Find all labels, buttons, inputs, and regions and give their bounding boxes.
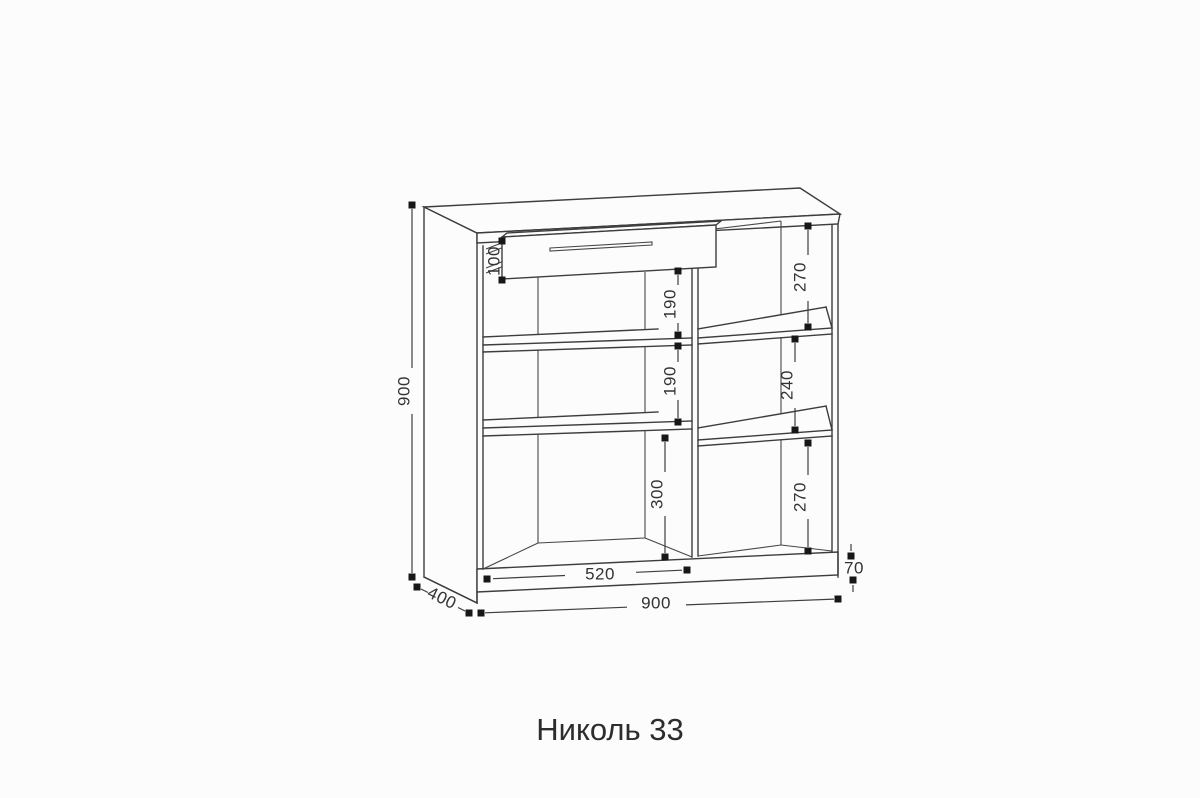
furniture-drawing-page: 900 400 900 100 — [0, 0, 1200, 798]
dim-height: 900 — [395, 202, 416, 581]
dim-left-top-gap-label: 190 — [661, 289, 680, 319]
plinth-front — [477, 552, 838, 592]
dim-left-middle-gap: 190 — [661, 343, 682, 426]
left-floor-back-edge — [538, 538, 645, 543]
dim-drawer-height: 100 — [485, 238, 506, 284]
dim-right-middle-gap-label: 240 — [778, 370, 797, 400]
dim-left-top-gap: 190 — [661, 268, 682, 339]
left-side-panel — [424, 207, 477, 603]
right-shelves — [698, 307, 832, 446]
dim-left-bottom-gap: 300 — [648, 435, 669, 561]
right-shelf-2 — [698, 406, 832, 446]
dim-height-label: 900 — [395, 376, 414, 406]
dim-right-bottom-gap-label: 270 — [791, 482, 810, 512]
dim-width: 900 — [478, 594, 842, 617]
right-floor-left-edge — [698, 545, 781, 556]
dim-right-top-gap-label: 270 — [791, 262, 810, 292]
dim-width-label: 900 — [641, 594, 671, 613]
dim-left-middle-gap-label: 190 — [661, 366, 680, 396]
dim-right-bottom-gap: 270 — [791, 440, 812, 555]
cabinet-technical-drawing: 900 400 900 100 — [0, 0, 1200, 798]
dim-left-section-width-label: 520 — [585, 565, 615, 584]
plinth — [477, 552, 838, 592]
left-floor-left-edge — [483, 543, 538, 569]
product-title: Николь 33 — [536, 712, 684, 747]
dim-plinth-height-label: 70 — [844, 559, 864, 578]
dim-plinth-height: 70 — [844, 544, 864, 592]
dim-drawer-height-label: 100 — [485, 246, 504, 276]
dim-left-bottom-gap-label: 300 — [648, 479, 667, 509]
